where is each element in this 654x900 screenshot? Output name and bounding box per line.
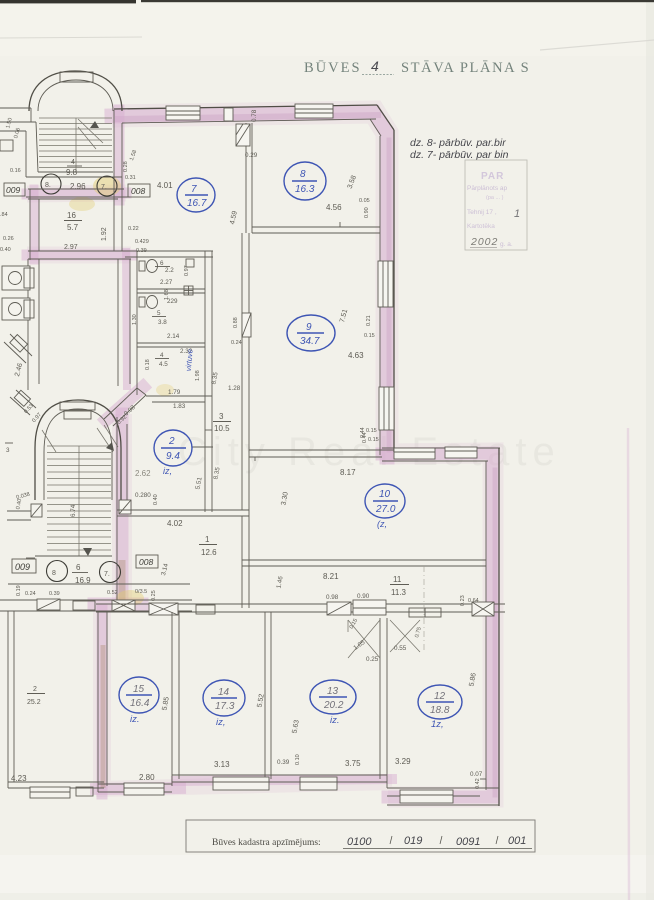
svg-text:0.15: 0.15 [364, 333, 375, 339]
svg-text:6: 6 [76, 563, 81, 572]
svg-text:0.42: 0.42 [475, 778, 481, 789]
svg-text:0.280: 0.280 [135, 492, 151, 499]
svg-text:019: 019 [404, 835, 422, 847]
svg-text:2.62: 2.62 [135, 469, 151, 478]
svg-text:0.22: 0.22 [128, 226, 139, 232]
svg-text:8.21: 8.21 [323, 572, 339, 581]
svg-text:Tehnij 17 ,: Tehnij 17 , [467, 209, 497, 216]
svg-text:8: 8 [300, 169, 306, 180]
svg-text:PAR: PAR [481, 171, 504, 182]
svg-text:0.40: 0.40 [153, 494, 159, 505]
svg-text:0.07: 0.07 [470, 771, 483, 778]
svg-text:0.18: 0.18 [145, 359, 151, 370]
svg-text:5: 5 [157, 310, 161, 317]
svg-text:0.25: 0.25 [151, 590, 157, 601]
svg-text:2.14: 2.14 [167, 333, 180, 340]
svg-text:0.98: 0.98 [326, 594, 339, 601]
svg-text:Kartotēka: Kartotēka [467, 223, 495, 230]
svg-text:12.6: 12.6 [201, 548, 217, 557]
svg-text:3.13: 3.13 [214, 760, 230, 769]
svg-text:27.0: 27.0 [375, 504, 396, 515]
svg-text:008: 008 [131, 186, 145, 196]
svg-text:9.8: 9.8 [66, 168, 78, 177]
svg-text:1: 1 [205, 535, 210, 544]
svg-text:.84: .84 [0, 212, 8, 218]
svg-text:3.75: 3.75 [345, 759, 361, 768]
svg-text:iz.: iz. [130, 714, 140, 725]
svg-text:34.7: 34.7 [300, 336, 320, 347]
svg-text:0.39: 0.39 [136, 248, 147, 254]
svg-text:0.90: 0.90 [357, 593, 370, 600]
svg-text:2: 2 [33, 686, 37, 693]
svg-text:8.17: 8.17 [340, 468, 356, 477]
svg-text:0.24: 0.24 [25, 591, 36, 597]
svg-text:0.28: 0.28 [123, 161, 129, 172]
svg-text:008: 008 [139, 557, 153, 567]
svg-text:0.78: 0.78 [251, 109, 258, 122]
svg-text:Pārplānots ap: Pārplānots ap [467, 185, 507, 192]
svg-text:9: 9 [306, 322, 312, 333]
svg-text:4: 4 [160, 352, 164, 359]
svg-text:0.29: 0.29 [245, 152, 258, 159]
svg-text:0.40: 0.40 [0, 247, 11, 253]
svg-text:1z,: 1z, [431, 719, 444, 730]
svg-text:9.4: 9.4 [166, 451, 180, 462]
svg-text:iz,: iz, [163, 466, 172, 476]
svg-text:25.2: 25.2 [27, 699, 41, 706]
svg-text:1.83: 1.83 [173, 403, 186, 410]
svg-text:4: 4 [371, 58, 379, 74]
svg-text:iz,: iz, [216, 717, 226, 728]
svg-text:0.19: 0.19 [16, 585, 22, 596]
svg-text:0.52: 0.52 [107, 590, 118, 596]
svg-text:0.24: 0.24 [231, 340, 242, 346]
svg-text:8.: 8. [45, 182, 51, 189]
svg-text:11: 11 [393, 575, 402, 584]
svg-text:2.27: 2.27 [160, 279, 173, 286]
svg-text:0.64: 0.64 [468, 598, 479, 604]
svg-text:0.97: 0.97 [184, 265, 190, 276]
svg-text:0.88: 0.88 [233, 317, 239, 328]
svg-text:16.9: 16.9 [75, 576, 91, 585]
svg-text:4.5: 4.5 [159, 361, 168, 368]
svg-text:0.23: 0.23 [460, 595, 466, 606]
svg-text:0091: 0091 [456, 836, 480, 848]
svg-text:0.10: 0.10 [295, 754, 301, 765]
svg-text:0.25: 0.25 [366, 656, 379, 663]
svg-text:16.7: 16.7 [187, 198, 207, 209]
svg-text:7.: 7. [104, 571, 110, 578]
svg-text:0.15: 0.15 [368, 437, 379, 443]
svg-text:2: 2 [168, 436, 175, 447]
svg-text:5.7: 5.7 [67, 223, 79, 232]
svg-text:iz.: iz. [330, 715, 340, 726]
svg-text:2.97: 2.97 [64, 244, 78, 251]
svg-text:17.3: 17.3 [215, 701, 235, 712]
svg-text:dz. 7- pārbūv. par bin: dz. 7- pārbūv. par bin [410, 149, 509, 161]
svg-text:0/3.5: 0/3.5 [135, 589, 147, 595]
svg-text:4.56: 4.56 [326, 203, 342, 212]
svg-text:dz. 8- pārbūv. par.bir: dz. 8- pārbūv. par.bir [410, 137, 506, 149]
svg-text:0.55: 0.55 [394, 645, 407, 652]
svg-text:1.79: 1.79 [168, 389, 181, 396]
svg-text:16.4: 16.4 [130, 698, 150, 709]
svg-text:001: 001 [508, 835, 526, 847]
svg-text:0.90: 0.90 [364, 207, 370, 218]
svg-text:6.74: 6.74 [70, 504, 77, 517]
svg-text:16: 16 [67, 211, 76, 220]
svg-text:13: 13 [327, 686, 339, 697]
svg-text:1: 1 [514, 208, 520, 220]
svg-text:0.26: 0.26 [3, 236, 14, 242]
svg-text:0.21: 0.21 [366, 315, 372, 326]
svg-text:11.3: 11.3 [391, 588, 407, 597]
svg-text:1.68: 1.68 [164, 289, 170, 300]
svg-text:8: 8 [52, 570, 56, 577]
svg-text:6: 6 [160, 260, 164, 267]
svg-text:12: 12 [434, 691, 446, 702]
svg-text:4.01: 4.01 [157, 181, 173, 190]
svg-text:2.96: 2.96 [70, 182, 86, 191]
svg-text:7: 7 [191, 184, 197, 195]
svg-text:14: 14 [218, 687, 230, 698]
svg-text:1.30: 1.30 [132, 314, 138, 325]
svg-text:2002: 2002 [470, 236, 498, 248]
svg-text:0.39: 0.39 [49, 591, 60, 597]
svg-text:(z,: (z, [377, 519, 387, 529]
svg-text:0.05: 0.05 [359, 198, 370, 204]
svg-text:1.28: 1.28 [228, 385, 241, 392]
svg-text:3: 3 [219, 412, 224, 421]
svg-text:0100: 0100 [347, 836, 372, 848]
svg-text:3: 3 [6, 447, 10, 454]
svg-text:0.16: 0.16 [10, 168, 21, 174]
svg-text:009: 009 [15, 562, 30, 572]
svg-text:3.29: 3.29 [395, 757, 411, 766]
svg-text:1.98: 1.98 [195, 370, 201, 381]
svg-text:18.8: 18.8 [430, 705, 450, 716]
svg-text:20.2: 20.2 [323, 700, 344, 711]
svg-text:10.5: 10.5 [214, 424, 230, 433]
svg-text:Būves kadastra apzīmējums:: Būves kadastra apzīmējums: [212, 838, 321, 848]
svg-text:1.92: 1.92 [101, 227, 108, 241]
svg-text:2.80: 2.80 [139, 773, 155, 782]
svg-text:009: 009 [6, 185, 20, 195]
svg-text:(pa ... ): (pa ... ) [486, 195, 504, 201]
svg-text:15: 15 [133, 684, 145, 695]
svg-text:2.2: 2.2 [165, 267, 174, 274]
svg-text:g. a.: g. a. [500, 241, 513, 248]
svg-text:16.3: 16.3 [295, 184, 315, 195]
svg-text:BŪVES: BŪVES [304, 60, 362, 76]
svg-text:7.: 7. [101, 184, 107, 191]
svg-text:4: 4 [71, 159, 75, 166]
svg-text:0.31: 0.31 [125, 175, 136, 181]
svg-text:10: 10 [379, 489, 391, 500]
svg-text:0.429: 0.429 [135, 239, 149, 245]
svg-text:0.39: 0.39 [277, 759, 290, 766]
svg-text:3.8: 3.8 [158, 319, 167, 326]
svg-text:4.02: 4.02 [167, 519, 183, 528]
svg-text:STĀVA PLĀNA S: STĀVA PLĀNA S [401, 60, 530, 76]
svg-text:virtuve: virtuve [184, 349, 195, 372]
svg-text:4.63: 4.63 [348, 351, 364, 360]
